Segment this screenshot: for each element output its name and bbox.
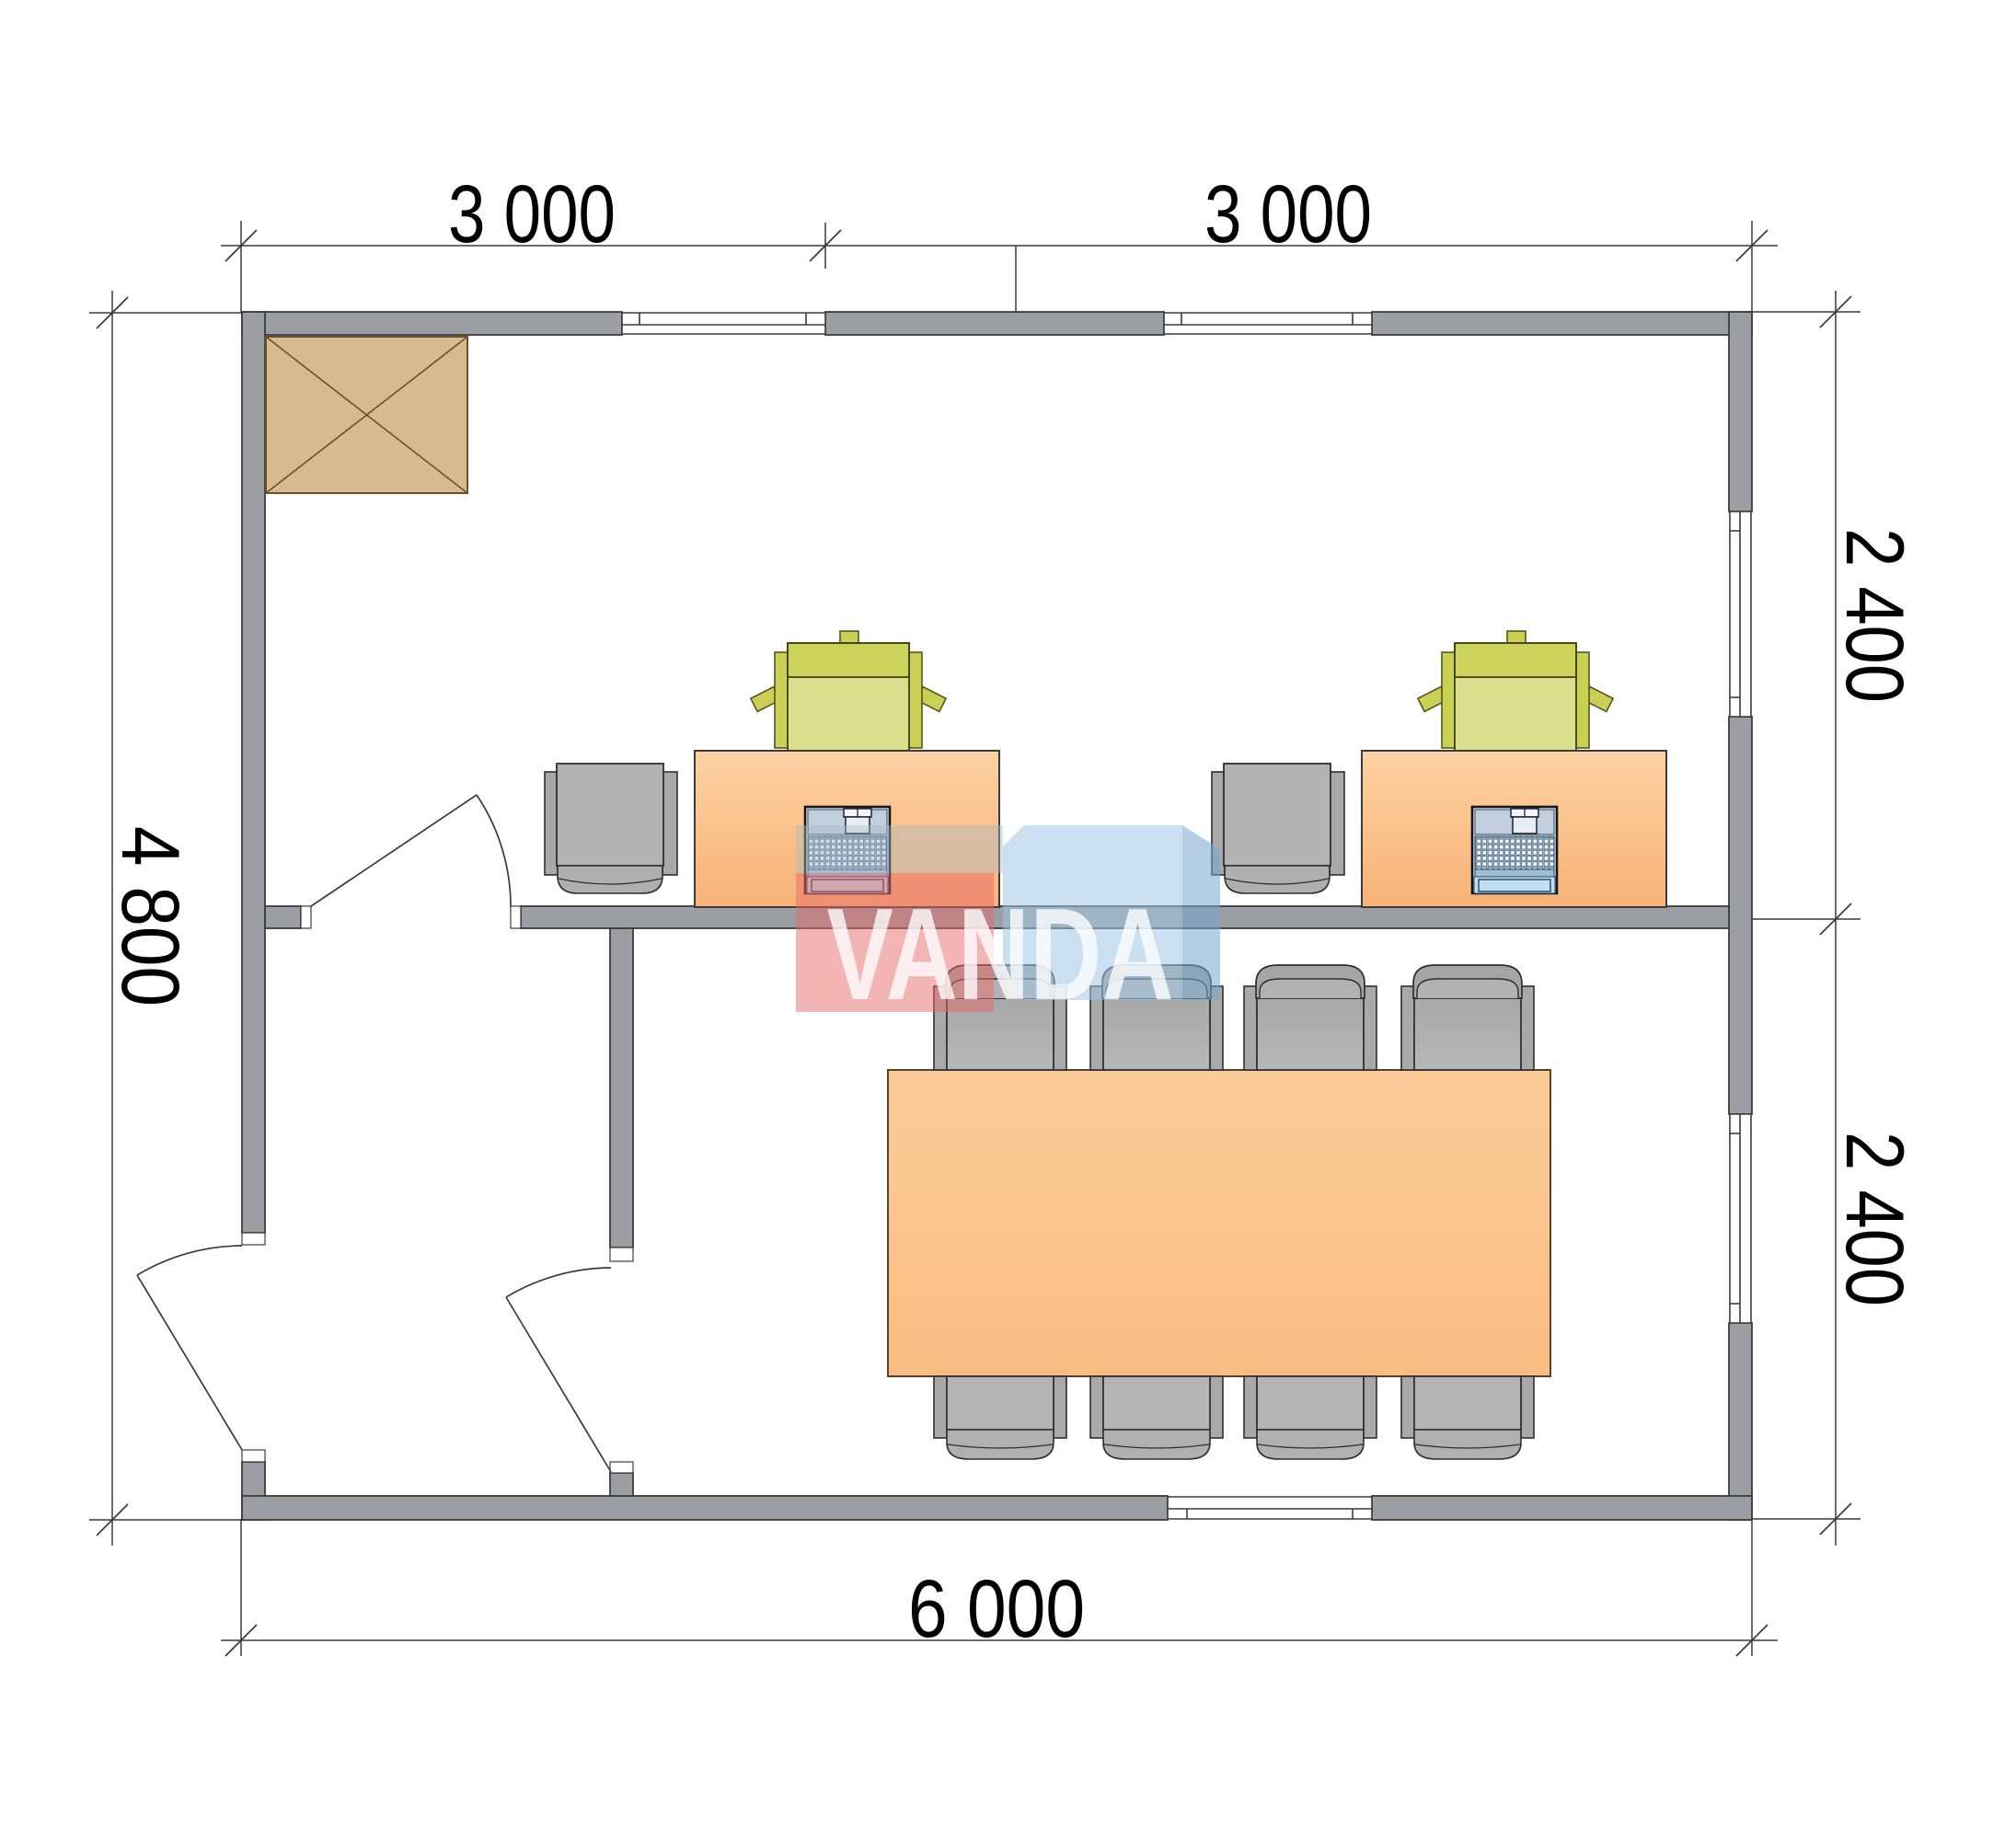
svg-text:3 000: 3 000 xyxy=(1204,167,1372,259)
svg-text:VANDA: VANDA xyxy=(827,881,1174,1028)
svg-text:6 000: 6 000 xyxy=(908,1562,1085,1654)
svg-text:3 000: 3 000 xyxy=(448,167,616,259)
svg-text:2 400: 2 400 xyxy=(1829,528,1921,703)
svg-text:2 400: 2 400 xyxy=(1829,1132,1921,1306)
svg-text:4 800: 4 800 xyxy=(105,826,197,1006)
